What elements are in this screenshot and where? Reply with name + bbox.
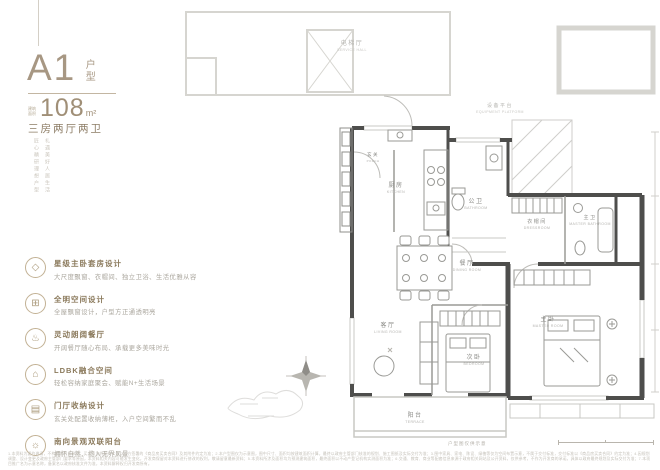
feature-title: 星级主卧套房设计 bbox=[54, 258, 197, 269]
master-bathroom-fittings bbox=[574, 204, 614, 256]
room-label-living: 客厅LIVING ROOM bbox=[358, 320, 418, 334]
feature-title: LDBK融合空间 bbox=[54, 365, 165, 376]
dimension-line bbox=[651, 132, 659, 392]
room-label-master: 主卧MASTER ROOM bbox=[518, 314, 578, 328]
area-block: 建筑面积 108 m² bbox=[28, 97, 96, 119]
rooms-summary: 三房两厅两卫 bbox=[28, 121, 103, 136]
feature-title: 南向景观双联阳台 bbox=[54, 436, 129, 447]
feature-desc: 轻松容纳家庭聚会、赋能N+生活场景 bbox=[54, 378, 165, 387]
room-label-terrace: 阳台TERRACE bbox=[385, 410, 445, 424]
legal-disclaimer: 1.本资料为要约邀请，不构成要约或承诺，买卖双方的权利义务以双方签署的《商品房买… bbox=[8, 452, 652, 467]
feature-foyer-storage: ▤ 门厅收纳设计 玄关处配置收纳薄柜，入户空间繁而不乱 bbox=[25, 399, 230, 423]
room-label-bedroom: 次卧BEDROOM bbox=[444, 352, 504, 366]
feature-bright-space: ⊞ 全明空间设计 全屋飘窗设计，户型方正通透明亮 bbox=[25, 293, 230, 317]
plan-type-label: 户型 bbox=[81, 59, 96, 83]
floorplan-page: 电梯厅SERVICE HALL 设备平台EQUIPMENT PLATFORM 玄… bbox=[0, 0, 660, 470]
plan-title: A1 户型 bbox=[27, 50, 96, 86]
feature-desc: 开阔餐厅随心布局、承载更多美味时光 bbox=[54, 343, 170, 352]
feature-title: 灵动朗阔餐厅 bbox=[54, 329, 170, 340]
room-label-dressroom: 衣帽间DRESSROOM bbox=[510, 218, 564, 230]
room-label-master-bathroom: 主卫MASTER BATHROOM bbox=[568, 214, 612, 226]
site-sketch bbox=[228, 390, 303, 418]
feature-desc: 全屋飘窗设计，户型方正通透明亮 bbox=[54, 307, 156, 316]
decor-vertical-line bbox=[38, 0, 39, 46]
dressroom-wardrobe bbox=[512, 198, 562, 213]
plan-caption: 户型图仅供示意 bbox=[448, 441, 487, 447]
master-furniture bbox=[514, 270, 617, 386]
area-value: 108 bbox=[40, 97, 85, 119]
feature-desc: 玄关处配置收纳薄柜，入户空间繁而不乱 bbox=[54, 414, 176, 423]
feature-master-suite: ◇ 星级主卧套房设计 大尺度飘窗、衣帽间、独立卫浴、生活优雅从容 bbox=[25, 257, 230, 281]
grid-icon: ⊞ bbox=[25, 293, 46, 314]
pipe-shaft bbox=[340, 128, 352, 232]
room-label-dining: 餐厅DINING ROOM bbox=[437, 258, 497, 272]
feature-title: 全明空间设计 bbox=[54, 294, 156, 305]
area-unit: m² bbox=[86, 108, 97, 118]
feature-title: 门厅收纳设计 bbox=[54, 400, 176, 411]
room-label-kitchen: 厨房KITCHEN bbox=[368, 180, 424, 194]
compass-icon bbox=[286, 356, 326, 396]
gem-icon: ◇ bbox=[25, 257, 46, 278]
room-label-equipment: 设备平台EQUIPMENT PLATFORM bbox=[455, 102, 545, 114]
area-label: 建筑面积 bbox=[28, 106, 38, 116]
home-icon: ⌂ bbox=[25, 364, 46, 385]
balcony-strip bbox=[510, 404, 654, 418]
room-label-bathroom: 公卫BATHROOM bbox=[450, 196, 502, 210]
feature-dining: ♨ 灵动朗阔餐厅 开阔餐厅随心布局、承载更多美味时光 bbox=[25, 328, 230, 352]
feature-desc: 大尺度飘窗、衣帽间、独立卫浴、生活优雅从容 bbox=[54, 272, 197, 281]
dining-icon: ♨ bbox=[25, 328, 46, 349]
feature-list: ◇ 星级主卧套房设计 大尺度飘窗、衣帽间、独立卫浴、生活优雅从容 ⊞ 全明空间设… bbox=[25, 257, 230, 470]
room-label-service-hall: 电梯厅SERVICE HALL bbox=[312, 38, 392, 52]
scale-bar bbox=[558, 440, 654, 445]
plan-code: A1 bbox=[27, 50, 76, 86]
feature-ldbk: ⌂ LDBK融合空间 轻松容纳家庭聚会、赋能N+生活场景 bbox=[25, 364, 230, 388]
room-label-porch: 玄关PORCH bbox=[354, 152, 392, 163]
cabinet-icon: ▤ bbox=[25, 399, 46, 420]
vertical-tagline: 匠心精研理想户型 礼遇美好人居生活 bbox=[33, 138, 51, 233]
equipment-hatch bbox=[512, 120, 572, 194]
common-area-outline bbox=[186, 12, 653, 95]
